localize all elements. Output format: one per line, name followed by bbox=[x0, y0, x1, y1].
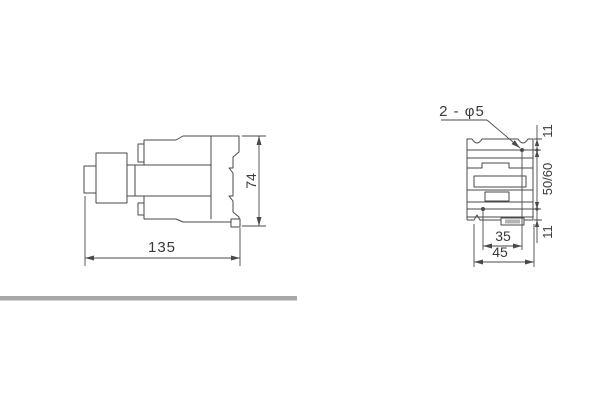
dim-11-top-label: 11 bbox=[540, 124, 555, 138]
dim-74: 74 bbox=[242, 136, 266, 226]
hole-callout-label: 2 - φ5 bbox=[439, 103, 485, 120]
dim-chain-vertical: 11 50/60 11 bbox=[534, 124, 555, 243]
front-view-nameplate bbox=[474, 176, 526, 187]
dim-50-60-label: 50/60 bbox=[540, 163, 555, 196]
side-view-bottom-clip bbox=[138, 203, 144, 215]
bottom-hole-marker bbox=[481, 207, 485, 211]
side-view-terminal-block bbox=[84, 166, 96, 193]
top-hole-marker bbox=[520, 148, 524, 152]
dim-11-bottom-label: 11 bbox=[540, 225, 555, 239]
dimension-drawing: 135 74 2 - φ5 bbox=[0, 0, 600, 400]
dim-135-label: 135 bbox=[148, 239, 176, 256]
dim-135: 135 bbox=[85, 196, 240, 266]
side-view-foot bbox=[231, 219, 240, 227]
dim-74-label: 74 bbox=[243, 173, 259, 189]
side-view-body-outline bbox=[144, 136, 239, 222]
arrow-top-edge bbox=[535, 139, 539, 146]
dim-35-label: 35 bbox=[495, 228, 511, 244]
front-view-foot-tab-insert bbox=[505, 220, 520, 224]
bottom-divider-bar bbox=[0, 296, 297, 301]
dim-45-label: 45 bbox=[492, 244, 508, 260]
arrow-bottom-edge bbox=[535, 220, 539, 227]
front-view-raised-tab bbox=[467, 163, 533, 168]
hole-callout: 2 - φ5 bbox=[439, 103, 520, 148]
front-view: 2 - φ5 11 50/60 11 35 45 bbox=[439, 103, 555, 267]
side-view-front-housing bbox=[96, 153, 127, 203]
front-view-label-window bbox=[485, 192, 509, 201]
drawing-canvas: 135 74 2 - φ5 bbox=[0, 0, 600, 400]
side-view: 135 74 bbox=[84, 136, 266, 266]
side-view-top-clip bbox=[138, 144, 144, 162]
side-view-neck-channel bbox=[127, 165, 211, 196]
